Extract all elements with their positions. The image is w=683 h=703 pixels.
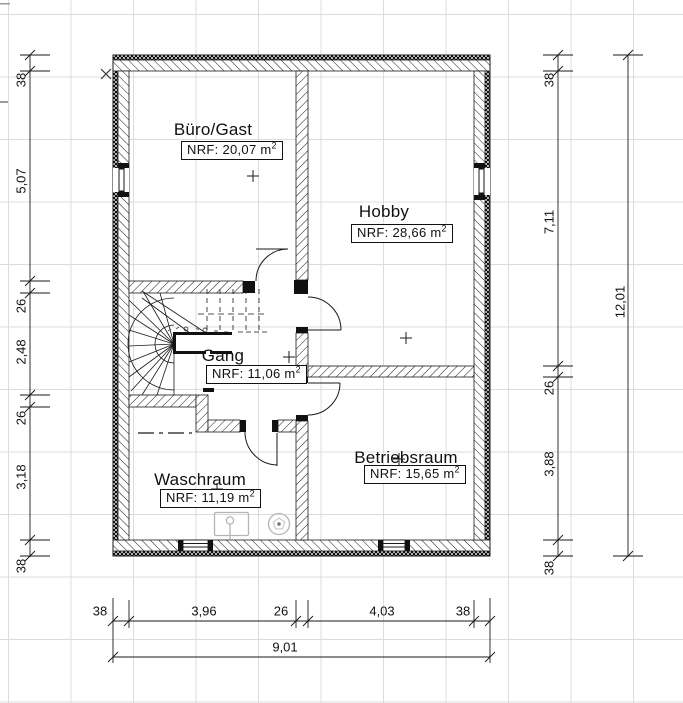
nrf-sup: 2 (296, 365, 301, 375)
dim-ext-bottom (113, 598, 490, 663)
window-right (474, 163, 490, 200)
door-hobby (308, 297, 341, 330)
nrf-value: NRF: 15,65 m (370, 466, 455, 481)
cross-hobby (400, 332, 412, 344)
room-label-waschraum[interactable]: Waschraum (154, 470, 246, 490)
dim-label-bottom-403: 4,03 (369, 604, 394, 619)
dim-label-right-388: 3,88 (542, 451, 557, 476)
nrf-box-waschraum[interactable]: NRF: 11,19 m2 (160, 489, 261, 508)
room-label-buero[interactable]: Büro/Gast (174, 120, 252, 140)
dim-chain-right (543, 50, 573, 561)
dim-label-bottom-38b: 38 (456, 604, 470, 619)
dim-chain-bottom-total (108, 652, 495, 662)
nrf-value: NRF: 28,66 m (357, 225, 442, 240)
dim-label-left-26b: 26 (14, 411, 29, 425)
stair-upper-flight-dashed (198, 289, 268, 332)
dim-label-left-318: 3,18 (14, 464, 29, 489)
waschraum-fixtures (215, 513, 290, 540)
dim-label-bottom-396: 3,96 (191, 604, 216, 619)
floor-plan-canvas[interactable]: Büro/Gast NRF: 20,07 m2 Hobby NRF: 28,66… (0, 0, 683, 703)
dim-label-left-38b: 38 (14, 559, 29, 573)
window-bottom-left (178, 540, 213, 551)
door-buero (256, 249, 288, 281)
dim-label-bottom-26: 26 (274, 604, 288, 619)
dim-label-right-711: 7,11 (542, 210, 557, 234)
nrf-box-gang[interactable]: NRF: 11,06 m2 (206, 365, 307, 384)
dim-label-left-507: 5,07 (14, 168, 29, 193)
nrf-value: NRF: 11,19 m (166, 490, 250, 505)
nrf-value: NRF: 11,06 m (212, 366, 296, 381)
dim-label-left-38a: 38 (14, 73, 29, 87)
viewport-artifacts (0, 3, 10, 103)
nrf-box-betriebsraum[interactable]: NRF: 15,65 m2 (364, 465, 466, 484)
dim-label-right-total: 12,01 (613, 286, 628, 319)
nrf-sup: 2 (250, 489, 255, 499)
dim-chain-bottom (108, 598, 495, 663)
nrf-box-buero[interactable]: NRF: 20,07 m2 (181, 141, 283, 160)
dim-label-left-26a: 26 (14, 299, 29, 313)
nrf-sup: 2 (455, 465, 460, 475)
cross-buero (247, 170, 259, 182)
dim-label-bottom-total: 9,01 (272, 640, 297, 655)
room-label-gang[interactable]: Gang (202, 346, 244, 366)
nrf-value: NRF: 20,07 m (187, 142, 272, 157)
nrf-box-hobby[interactable]: NRF: 28,66 m2 (351, 224, 453, 243)
elevation-dash (203, 388, 214, 392)
dim-label-right-26: 26 (542, 381, 557, 395)
origin-x-marker (101, 69, 111, 79)
dim-label-right-38b: 38 (542, 561, 557, 575)
door-betriebsraum (308, 383, 340, 415)
window-bottom-right (378, 540, 410, 551)
dim-label-right-38a: 38 (542, 73, 557, 87)
room-label-hobby[interactable]: Hobby (359, 202, 409, 222)
window-left (113, 163, 129, 197)
door-waschraum (245, 432, 277, 466)
dim-label-bottom-38a: 38 (93, 604, 107, 619)
floor-plan-drawing[interactable] (0, 0, 683, 703)
nrf-sup: 2 (442, 224, 447, 234)
nrf-sup: 2 (272, 141, 277, 151)
cross-gang (283, 351, 295, 363)
dim-label-left-248: 2,48 (14, 339, 29, 364)
